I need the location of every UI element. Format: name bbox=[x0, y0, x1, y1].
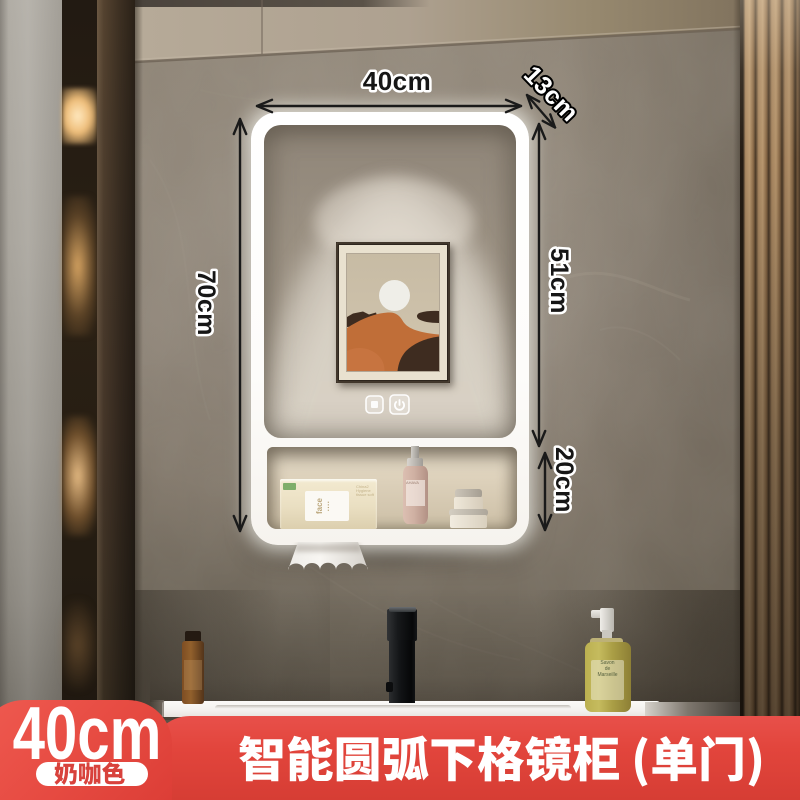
svg-text:13cm: 13cm bbox=[518, 61, 584, 128]
svg-text:20cm: 20cm bbox=[550, 447, 578, 513]
svg-text:51cm: 51cm bbox=[545, 248, 573, 314]
svg-text:40cm: 40cm bbox=[363, 66, 432, 96]
svg-text:70cm: 70cm bbox=[192, 270, 220, 336]
